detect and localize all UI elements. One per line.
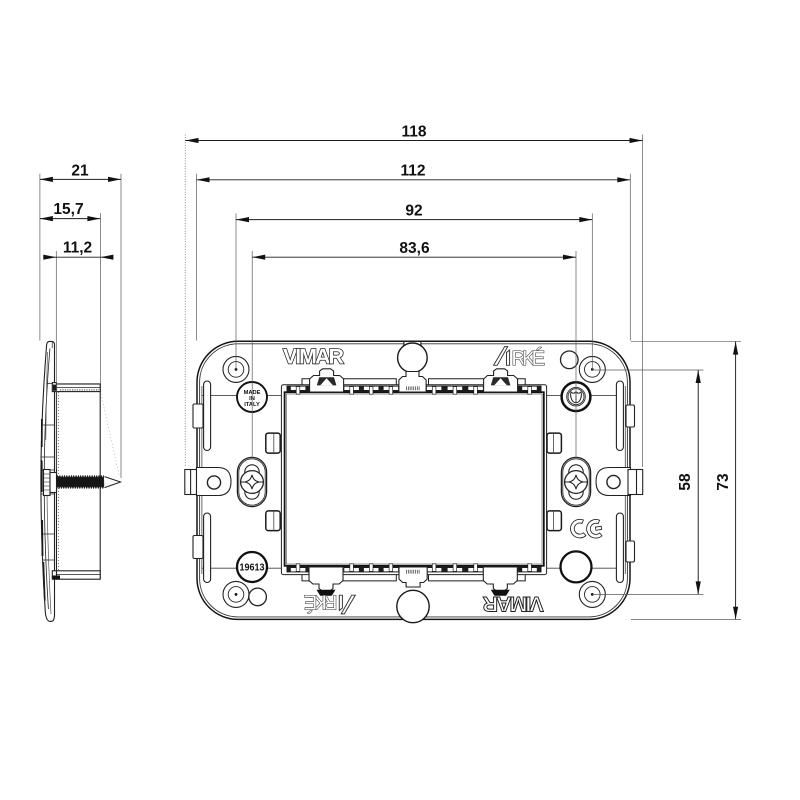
- svg-text:VIMAR: VIMAR: [283, 345, 344, 369]
- svg-text:112: 112: [400, 163, 425, 180]
- svg-text:RKÉ: RKÉ: [512, 347, 546, 370]
- svg-text:19613: 19613: [240, 563, 265, 574]
- svg-text:VIMAR: VIMAR: [482, 592, 543, 616]
- svg-text:21: 21: [71, 162, 89, 179]
- svg-text:15,7: 15,7: [53, 201, 83, 218]
- svg-text:RKÉ: RKÉ: [304, 590, 338, 613]
- svg-text:118: 118: [401, 123, 426, 140]
- svg-text:58: 58: [677, 473, 694, 491]
- svg-text:92: 92: [405, 202, 422, 219]
- svg-text:73: 73: [715, 473, 732, 491]
- svg-text:83,6: 83,6: [399, 240, 430, 257]
- svg-text:11,2: 11,2: [63, 240, 92, 257]
